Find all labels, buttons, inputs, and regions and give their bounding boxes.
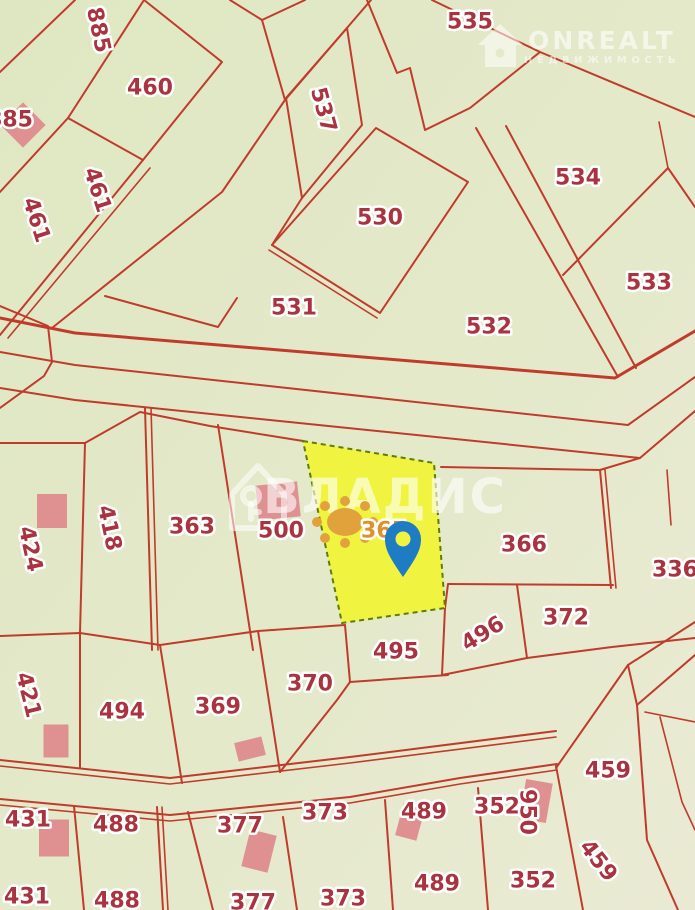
parcel-label-352: 352 — [474, 795, 520, 820]
watermark-vladis-text: ВЛАДИС — [263, 469, 507, 525]
parcel-label-532: 532 — [466, 315, 512, 340]
parcel-label-459: 459 — [585, 759, 631, 784]
parcel-label-370: 370 — [287, 672, 333, 697]
cadastral-map[interactable]: ВЛАДИС ONREALT НЕДВИЖИМОСТЬ 885460885461… — [0, 0, 695, 910]
cadastral-map-view: ВЛАДИС ONREALT НЕДВИЖИМОСТЬ 885460885461… — [0, 0, 695, 910]
parcel-label-531: 531 — [271, 296, 317, 321]
parcel-label-488: 488 — [93, 813, 139, 838]
parcel-label-950: 950 — [515, 789, 540, 835]
parcel-label-369: 369 — [195, 695, 241, 720]
parcel-label-372: 372 — [543, 606, 589, 631]
parcel-label-885: 885 — [0, 108, 33, 133]
parcel-label-489: 489 — [401, 800, 447, 825]
watermark-onrealt-tagline: НЕДВИЖИМОСТЬ — [524, 55, 680, 66]
parcel-label-366: 366 — [501, 533, 547, 558]
parcel-label-494: 494 — [99, 700, 145, 725]
parcel-label-495: 495 — [373, 640, 419, 665]
parcel-label-352: 352 — [510, 869, 556, 894]
parcel-label-431: 431 — [5, 808, 51, 833]
parcel-label-336: 336 — [652, 558, 695, 583]
parcel-label-377: 377 — [217, 814, 263, 839]
building-footprint — [37, 494, 67, 528]
parcel-label-500: 500 — [258, 519, 304, 544]
parcel-label-533: 533 — [626, 271, 672, 296]
building-footprint — [44, 725, 69, 758]
parcel-label-373: 373 — [320, 887, 366, 910]
parcel-label-460: 460 — [127, 76, 173, 101]
parcel-label-489: 489 — [414, 872, 460, 897]
parcel-label-363: 363 — [169, 515, 215, 540]
parcel-label-373: 373 — [302, 801, 348, 826]
parcel-label-534: 534 — [555, 166, 601, 191]
parcel-label-377: 377 — [230, 891, 276, 910]
parcel-label-535: 535 — [447, 10, 493, 35]
watermark-onrealt-text: ONREALT — [528, 26, 676, 55]
parcel-label-431: 431 — [4, 885, 50, 910]
parcel-label-488: 488 — [94, 889, 140, 910]
parcel-label-530: 530 — [357, 206, 403, 231]
